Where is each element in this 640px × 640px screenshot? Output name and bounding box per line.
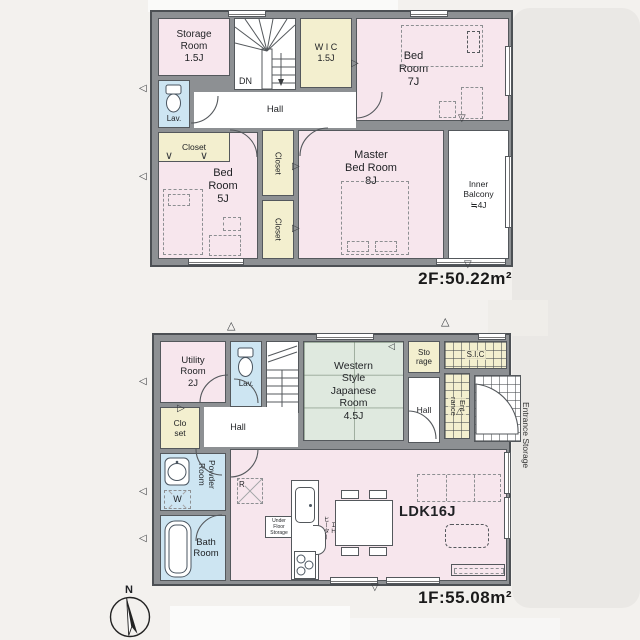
kitchen-sink (295, 487, 315, 523)
bedroom5-label: Bed Room 5J (208, 167, 237, 206)
area-label-1f: 1F:55.08m² (396, 588, 512, 608)
floorplan-page: Storage Room 1.5J DN W I C 1.5J (0, 0, 640, 640)
vent-marker: ▽ (458, 114, 466, 124)
door-direction-marker: ▷ (292, 224, 300, 234)
stairs-dn-label: DN (239, 76, 252, 87)
window-marker (410, 10, 448, 17)
storage-room-label: Storage Room 1.5J (176, 29, 211, 64)
room-bedroom7: Bed Room 7J (356, 18, 509, 121)
bg-shade-bottom2 (350, 618, 560, 640)
chair-7j (439, 101, 456, 118)
powder-room-label: Powder Room (197, 460, 217, 489)
window-marker (188, 258, 244, 265)
desk-5j (209, 235, 241, 256)
hall-1f: Hall (204, 407, 298, 447)
area-label-2f: 2F:50.22m² (400, 269, 512, 289)
bg-shade-bottom1 (170, 606, 350, 640)
room-powder: W Powder Room (160, 453, 226, 511)
room-utility: Utility Room 2J (160, 341, 226, 403)
pillow-5j (168, 194, 190, 206)
sic-label: S.I.C (465, 350, 487, 359)
balcony-label: Inner Balcony ≒4J (463, 179, 493, 209)
closet-2f-b: Closet (262, 200, 294, 259)
sofa-divider (474, 475, 475, 501)
faucet-dot (309, 504, 312, 507)
door-direction-marker: ▷ (351, 59, 359, 69)
under-floor-storage: Under Floor Storage (265, 516, 293, 538)
window-marker (316, 333, 374, 340)
kitchen-counter (291, 480, 319, 580)
room-sic: S.I.C (444, 341, 507, 369)
tv-board-hatch (454, 568, 504, 574)
closet-fold-marker: ∨ (165, 150, 173, 161)
door-direction-marker: ◁ (388, 343, 395, 352)
washer-label: W (172, 494, 183, 505)
dining-chair (341, 547, 359, 556)
dining-chair (369, 490, 387, 499)
lav-2f-label: Lav. (167, 114, 182, 123)
room-bath: Bath Room (160, 515, 226, 581)
room-lav-2f: Lav. (158, 80, 190, 128)
hall-1f-label: Hall (230, 422, 246, 433)
bath-room-label: Bath Room (193, 537, 218, 559)
sofa (417, 474, 501, 502)
vent-marker: ▽ (371, 583, 379, 593)
lav-1f-label: Lav. (239, 379, 254, 388)
door-direction-marker: △ (456, 408, 463, 417)
window-marker (505, 46, 512, 96)
window-marker (386, 577, 440, 584)
tv-board (451, 564, 505, 576)
sink-icon (164, 457, 190, 487)
closet-fold-marker: ∨ (200, 150, 208, 161)
wic-label: W I C 1.5J (315, 42, 338, 63)
fridge-label: R (239, 480, 245, 489)
room-storage-1f: Sto rage (408, 341, 440, 373)
entrance-door-arc (475, 376, 520, 441)
closet-b-label: Closet (273, 218, 282, 241)
window-marker (504, 497, 511, 539)
japanese-room-label: Western Style Japanese Room 4.5J (331, 360, 377, 422)
closet-2f-a: Closet (262, 130, 294, 196)
hall-entrance: Hall (408, 377, 440, 443)
pillow-master-2 (375, 241, 397, 252)
chair-5j (223, 217, 241, 231)
hall-2f: Hall (194, 92, 356, 128)
room-inner-balcony: Inner Balcony ≒4J (448, 130, 509, 259)
ih-heater-label: ＩＨ ヒーター (321, 516, 335, 540)
door-direction-marker: ▷ (292, 162, 300, 172)
window-marker (505, 156, 512, 228)
room-ldk: R Under Floor Storage ＩＨ ヒーター (230, 449, 507, 581)
vent-marker: ◁ (139, 172, 147, 182)
dining-chair (341, 490, 359, 499)
stove-icon (294, 551, 316, 579)
stairs-up-icon (267, 342, 298, 412)
room-master-bedroom: Master Bed Room 8J (298, 130, 444, 259)
entrance-storage-label: Entrance Storage (521, 388, 531, 483)
door-direction-marker: ▷ (177, 404, 185, 414)
room-lav-1f: Lav. (230, 341, 262, 407)
pillow-7j (467, 31, 480, 53)
closet-1f-label: Clo set (174, 418, 187, 438)
entrance-porch (474, 375, 521, 442)
window-marker (478, 333, 506, 340)
staircase-1f (266, 341, 299, 413)
toilet-icon (235, 347, 257, 379)
room-japanese: Western Style Japanese Room 4.5J (303, 341, 404, 441)
room-storage-2f: Storage Room 1.5J (158, 18, 230, 76)
dining-chair (369, 547, 387, 556)
sofa-divider (446, 475, 447, 501)
washing-machine: W (164, 490, 191, 509)
vent-marker: ◁ (139, 534, 147, 544)
vent-marker: ◁ (139, 377, 147, 387)
refrigerator: R (237, 478, 263, 504)
vent-marker: △ (441, 316, 449, 327)
compass-icon (108, 594, 152, 640)
floor-1f: Utility Room 2J Lav. UP Western Style Ja… (152, 333, 511, 586)
utility-label: Utility Room 2J (180, 355, 205, 389)
hall-2f-label: Hall (267, 104, 283, 115)
vent-marker: △ (227, 320, 235, 331)
toilet-icon (163, 84, 185, 114)
bathtub-icon (164, 520, 192, 578)
under-floor-storage-label: Under Floor Storage (270, 518, 288, 537)
ldk-label: LDK16J (399, 504, 456, 521)
room-wic: W I C 1.5J (300, 18, 352, 88)
window-marker (228, 10, 266, 17)
vent-marker: ◁ (139, 487, 147, 497)
pillow-master-1 (347, 241, 369, 252)
vent-marker: ◁ (139, 84, 147, 94)
room-entrance: Ent rance (444, 373, 470, 439)
dining-table (335, 500, 393, 546)
storage-1f-label: Sto rage (416, 348, 432, 367)
coffee-table (445, 524, 489, 548)
window-marker (504, 452, 511, 494)
staircase-2f: DN (234, 18, 296, 90)
floor-2f: Storage Room 1.5J DN W I C 1.5J (150, 10, 513, 267)
closet-a-label: Closet (273, 152, 282, 175)
hall-entrance-label: Hall (417, 405, 432, 415)
bg-shade-mid (488, 300, 548, 336)
